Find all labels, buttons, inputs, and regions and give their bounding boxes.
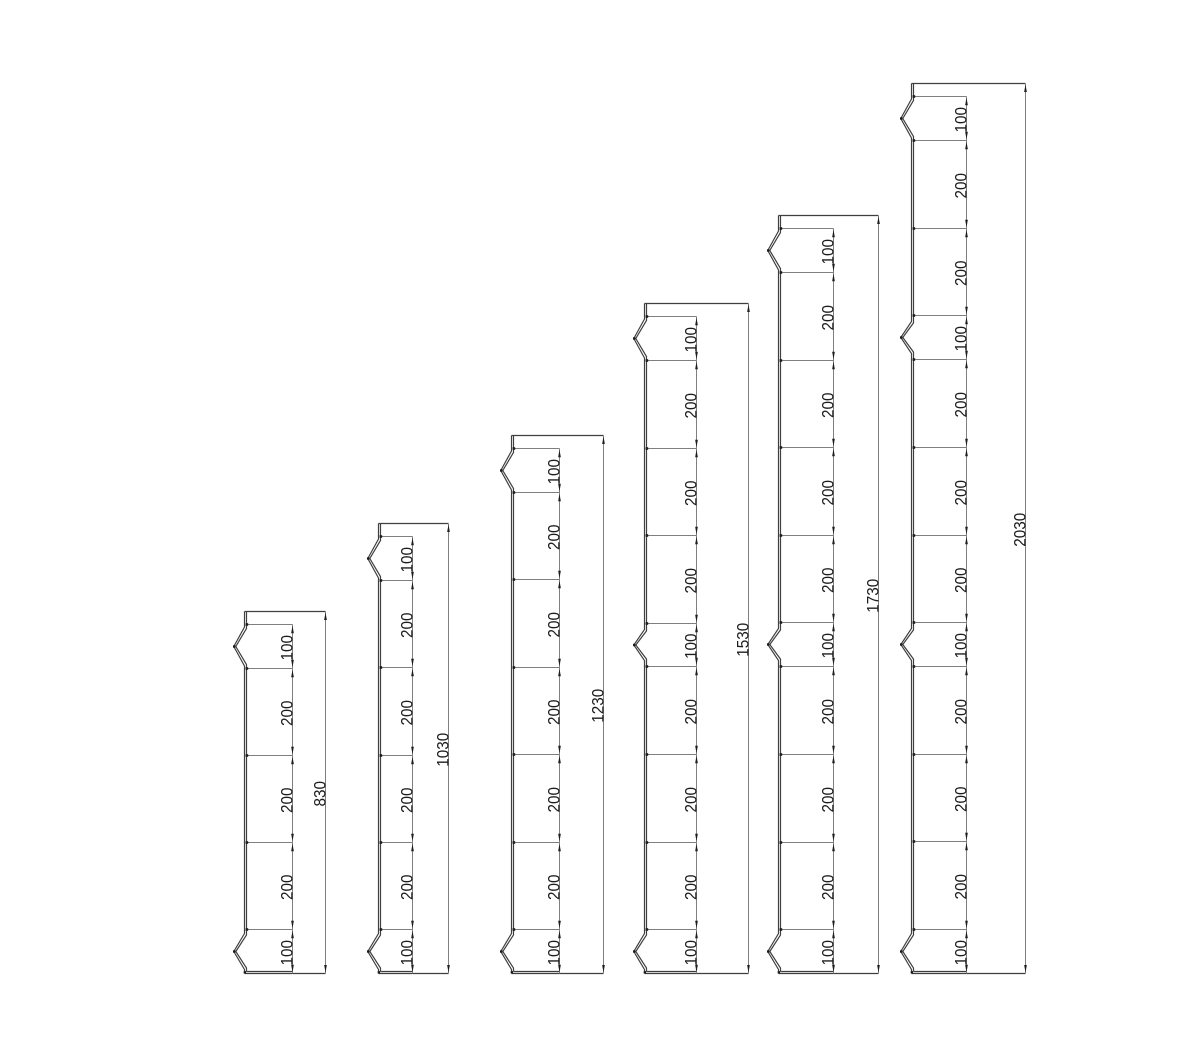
svg-text:1230: 1230	[589, 689, 608, 723]
svg-text:200: 200	[278, 875, 297, 901]
svg-text:200: 200	[545, 612, 564, 638]
svg-text:830: 830	[311, 781, 330, 807]
svg-text:100: 100	[682, 940, 701, 966]
svg-text:200: 200	[819, 480, 838, 506]
svg-text:200: 200	[278, 701, 297, 727]
svg-text:1530: 1530	[734, 623, 753, 657]
svg-text:200: 200	[819, 699, 838, 725]
svg-text:200: 200	[398, 788, 417, 814]
svg-text:100: 100	[952, 326, 971, 352]
svg-text:200: 200	[819, 875, 838, 901]
svg-text:200: 200	[545, 700, 564, 726]
svg-text:200: 200	[952, 173, 971, 199]
svg-text:200: 200	[819, 568, 838, 594]
svg-text:200: 200	[682, 875, 701, 901]
svg-text:200: 200	[952, 699, 971, 725]
svg-text:100: 100	[278, 635, 297, 661]
svg-text:200: 200	[682, 481, 701, 507]
svg-text:100: 100	[545, 940, 564, 966]
svg-text:100: 100	[819, 940, 838, 966]
svg-text:200: 200	[952, 392, 971, 418]
svg-text:200: 200	[682, 699, 701, 725]
svg-text:100: 100	[398, 940, 417, 966]
svg-text:200: 200	[952, 480, 971, 506]
svg-text:100: 100	[952, 107, 971, 133]
svg-text:1030: 1030	[434, 733, 453, 767]
svg-text:200: 200	[952, 874, 971, 900]
svg-text:200: 200	[682, 568, 701, 594]
svg-text:200: 200	[398, 875, 417, 901]
svg-text:200: 200	[952, 261, 971, 287]
svg-text:200: 200	[545, 525, 564, 551]
svg-text:100: 100	[398, 547, 417, 573]
svg-text:100: 100	[545, 459, 564, 485]
svg-text:200: 200	[952, 568, 971, 594]
svg-text:200: 200	[819, 393, 838, 419]
svg-text:100: 100	[952, 940, 971, 966]
svg-text:200: 200	[682, 787, 701, 813]
svg-text:100: 100	[682, 634, 701, 660]
svg-text:200: 200	[398, 700, 417, 726]
svg-text:100: 100	[952, 633, 971, 659]
svg-text:200: 200	[278, 788, 297, 814]
svg-text:200: 200	[952, 787, 971, 813]
svg-text:1730: 1730	[864, 579, 883, 613]
svg-text:200: 200	[819, 305, 838, 331]
svg-text:2030: 2030	[1011, 513, 1030, 547]
svg-text:100: 100	[819, 633, 838, 659]
svg-text:200: 200	[682, 393, 701, 419]
svg-text:200: 200	[819, 787, 838, 813]
svg-text:200: 200	[545, 875, 564, 901]
svg-text:100: 100	[682, 327, 701, 353]
svg-text:100: 100	[819, 239, 838, 264]
svg-text:100: 100	[278, 940, 297, 966]
svg-text:200: 200	[545, 787, 564, 813]
svg-text:200: 200	[398, 613, 417, 639]
